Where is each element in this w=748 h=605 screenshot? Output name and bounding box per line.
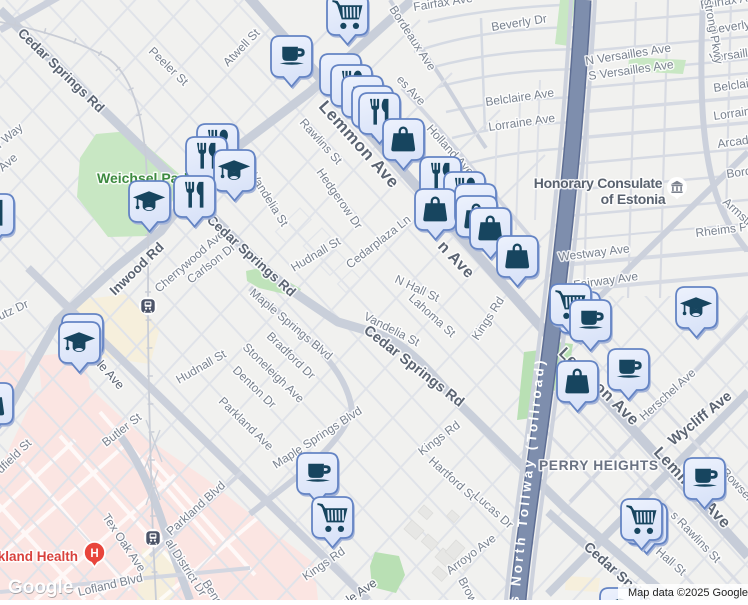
svg-text:Parkland Health: Parkland Health — [0, 549, 78, 564]
svg-text:of Estonia: of Estonia — [601, 191, 666, 207]
svg-text:H: H — [90, 548, 98, 560]
svg-text:Map data ©2025 Google: Map data ©2025 Google — [628, 587, 748, 599]
svg-text:PERRY HEIGHTS: PERRY HEIGHTS — [539, 458, 659, 473]
svg-text:Google: Google — [8, 577, 73, 598]
svg-text:Honorary Consulate: Honorary Consulate — [534, 175, 663, 191]
